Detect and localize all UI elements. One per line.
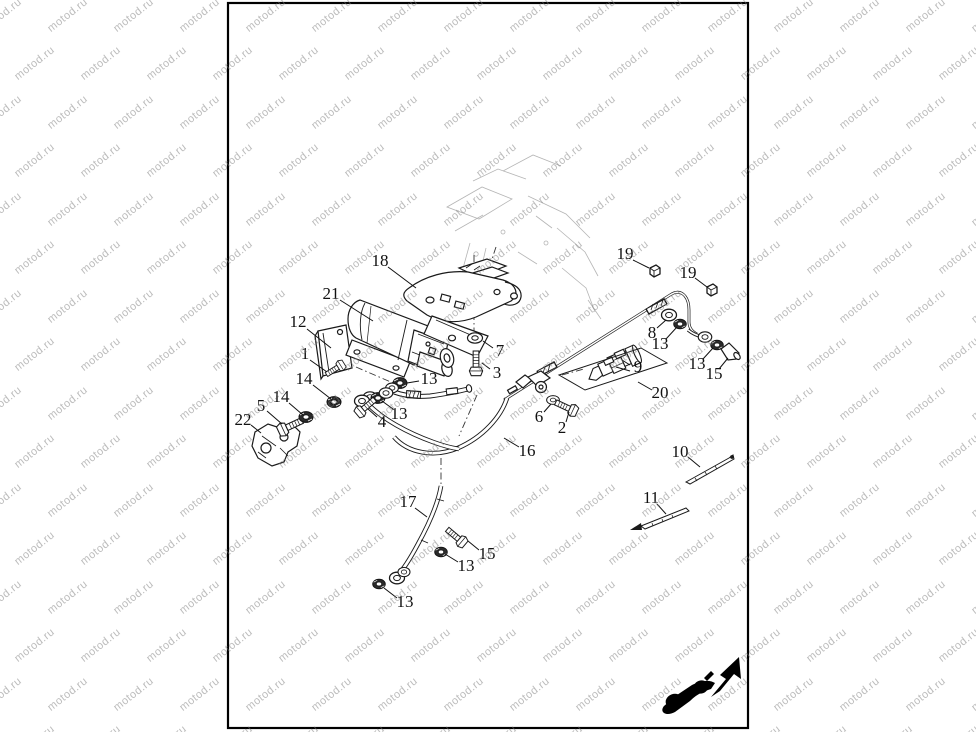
elbow-eyelet <box>379 388 393 398</box>
part-callout-10: 10 <box>672 442 689 461</box>
hose-eyelet <box>398 567 410 576</box>
part-callout-13: 13 <box>458 556 475 575</box>
bolt-2 <box>553 397 580 418</box>
part-callout-1: 1 <box>301 344 310 363</box>
callout-leader-line <box>688 457 700 467</box>
part-callout-19: 19 <box>617 244 634 263</box>
part-callout-14: 14 <box>273 387 291 406</box>
part-callout-3: 3 <box>493 363 502 382</box>
washer-7 <box>468 333 483 343</box>
nut-13 <box>674 319 687 329</box>
callout-leader-line <box>482 363 490 369</box>
washer-14 <box>327 397 341 408</box>
callout-leader-line <box>445 554 458 562</box>
callout-leader-line <box>415 508 427 517</box>
part-callout-22: 22 <box>235 410 252 429</box>
part-callout-13: 13 <box>652 334 669 353</box>
clamp-bracket <box>508 371 550 394</box>
callout-leader-line <box>313 385 331 399</box>
callout-leader-line <box>695 278 707 287</box>
callout-leader-line <box>633 260 649 268</box>
part-callout-16: 16 <box>519 441 536 460</box>
callout-leader-line <box>289 403 303 415</box>
bolt-15 <box>443 525 469 550</box>
parts-diagram: 1821121141452213134731919813131592062161… <box>0 0 976 732</box>
part-callout-14: 14 <box>296 369 314 388</box>
fitting-8 <box>662 309 677 321</box>
callout-leader-line <box>657 320 666 328</box>
part-callout-15: 15 <box>479 544 496 563</box>
part-callout-7: 7 <box>496 341 505 360</box>
part-callout-20: 20 <box>652 383 669 402</box>
part-callout-2: 2 <box>558 418 567 437</box>
part-callout-11: 11 <box>643 488 659 507</box>
callout-leader-line <box>407 381 419 383</box>
part-callout-21: 21 <box>323 284 340 303</box>
part-callout-13: 13 <box>421 369 438 388</box>
callout-leader-line <box>504 438 519 447</box>
callout-leader-line <box>638 382 652 390</box>
retaining-clip-19 <box>707 284 717 296</box>
diagram-frame <box>228 3 748 728</box>
callout-leader-line <box>388 267 416 288</box>
part-callout-5: 5 <box>257 396 266 415</box>
washer-13 <box>373 579 386 589</box>
part-callout-15: 15 <box>706 364 723 383</box>
part-callout-4: 4 <box>378 412 387 431</box>
fuel-supply-fitting-22 <box>252 424 300 466</box>
callout-leader-line <box>384 588 397 598</box>
part-callout-13: 13 <box>391 404 408 423</box>
retaining-clip-19 <box>650 265 660 277</box>
part-callout-13: 13 <box>689 354 706 373</box>
callout-leader-line <box>267 411 282 424</box>
elbow-fitting-15 <box>721 343 741 361</box>
washer-13 <box>435 547 448 557</box>
part-callout-13: 13 <box>397 592 414 611</box>
part-callout-17: 17 <box>400 492 418 511</box>
callout-leader-line <box>544 404 551 412</box>
callout-leader-line <box>468 541 479 550</box>
part-callout-19: 19 <box>680 263 697 282</box>
part-callout-18: 18 <box>372 251 389 270</box>
cable-strap-10 <box>686 455 734 484</box>
callout-leader-line <box>483 341 493 348</box>
part-callout-9: 9 <box>634 357 643 376</box>
eyelet <box>698 332 712 342</box>
motorcycle-direction-icon <box>662 657 741 714</box>
part-callout-6: 6 <box>535 407 544 426</box>
parts-diagram-page: 1821121141452213134731919813131592062161… <box>0 0 976 732</box>
cable-strap-11 <box>630 508 689 530</box>
part-callout-12: 12 <box>290 312 307 331</box>
